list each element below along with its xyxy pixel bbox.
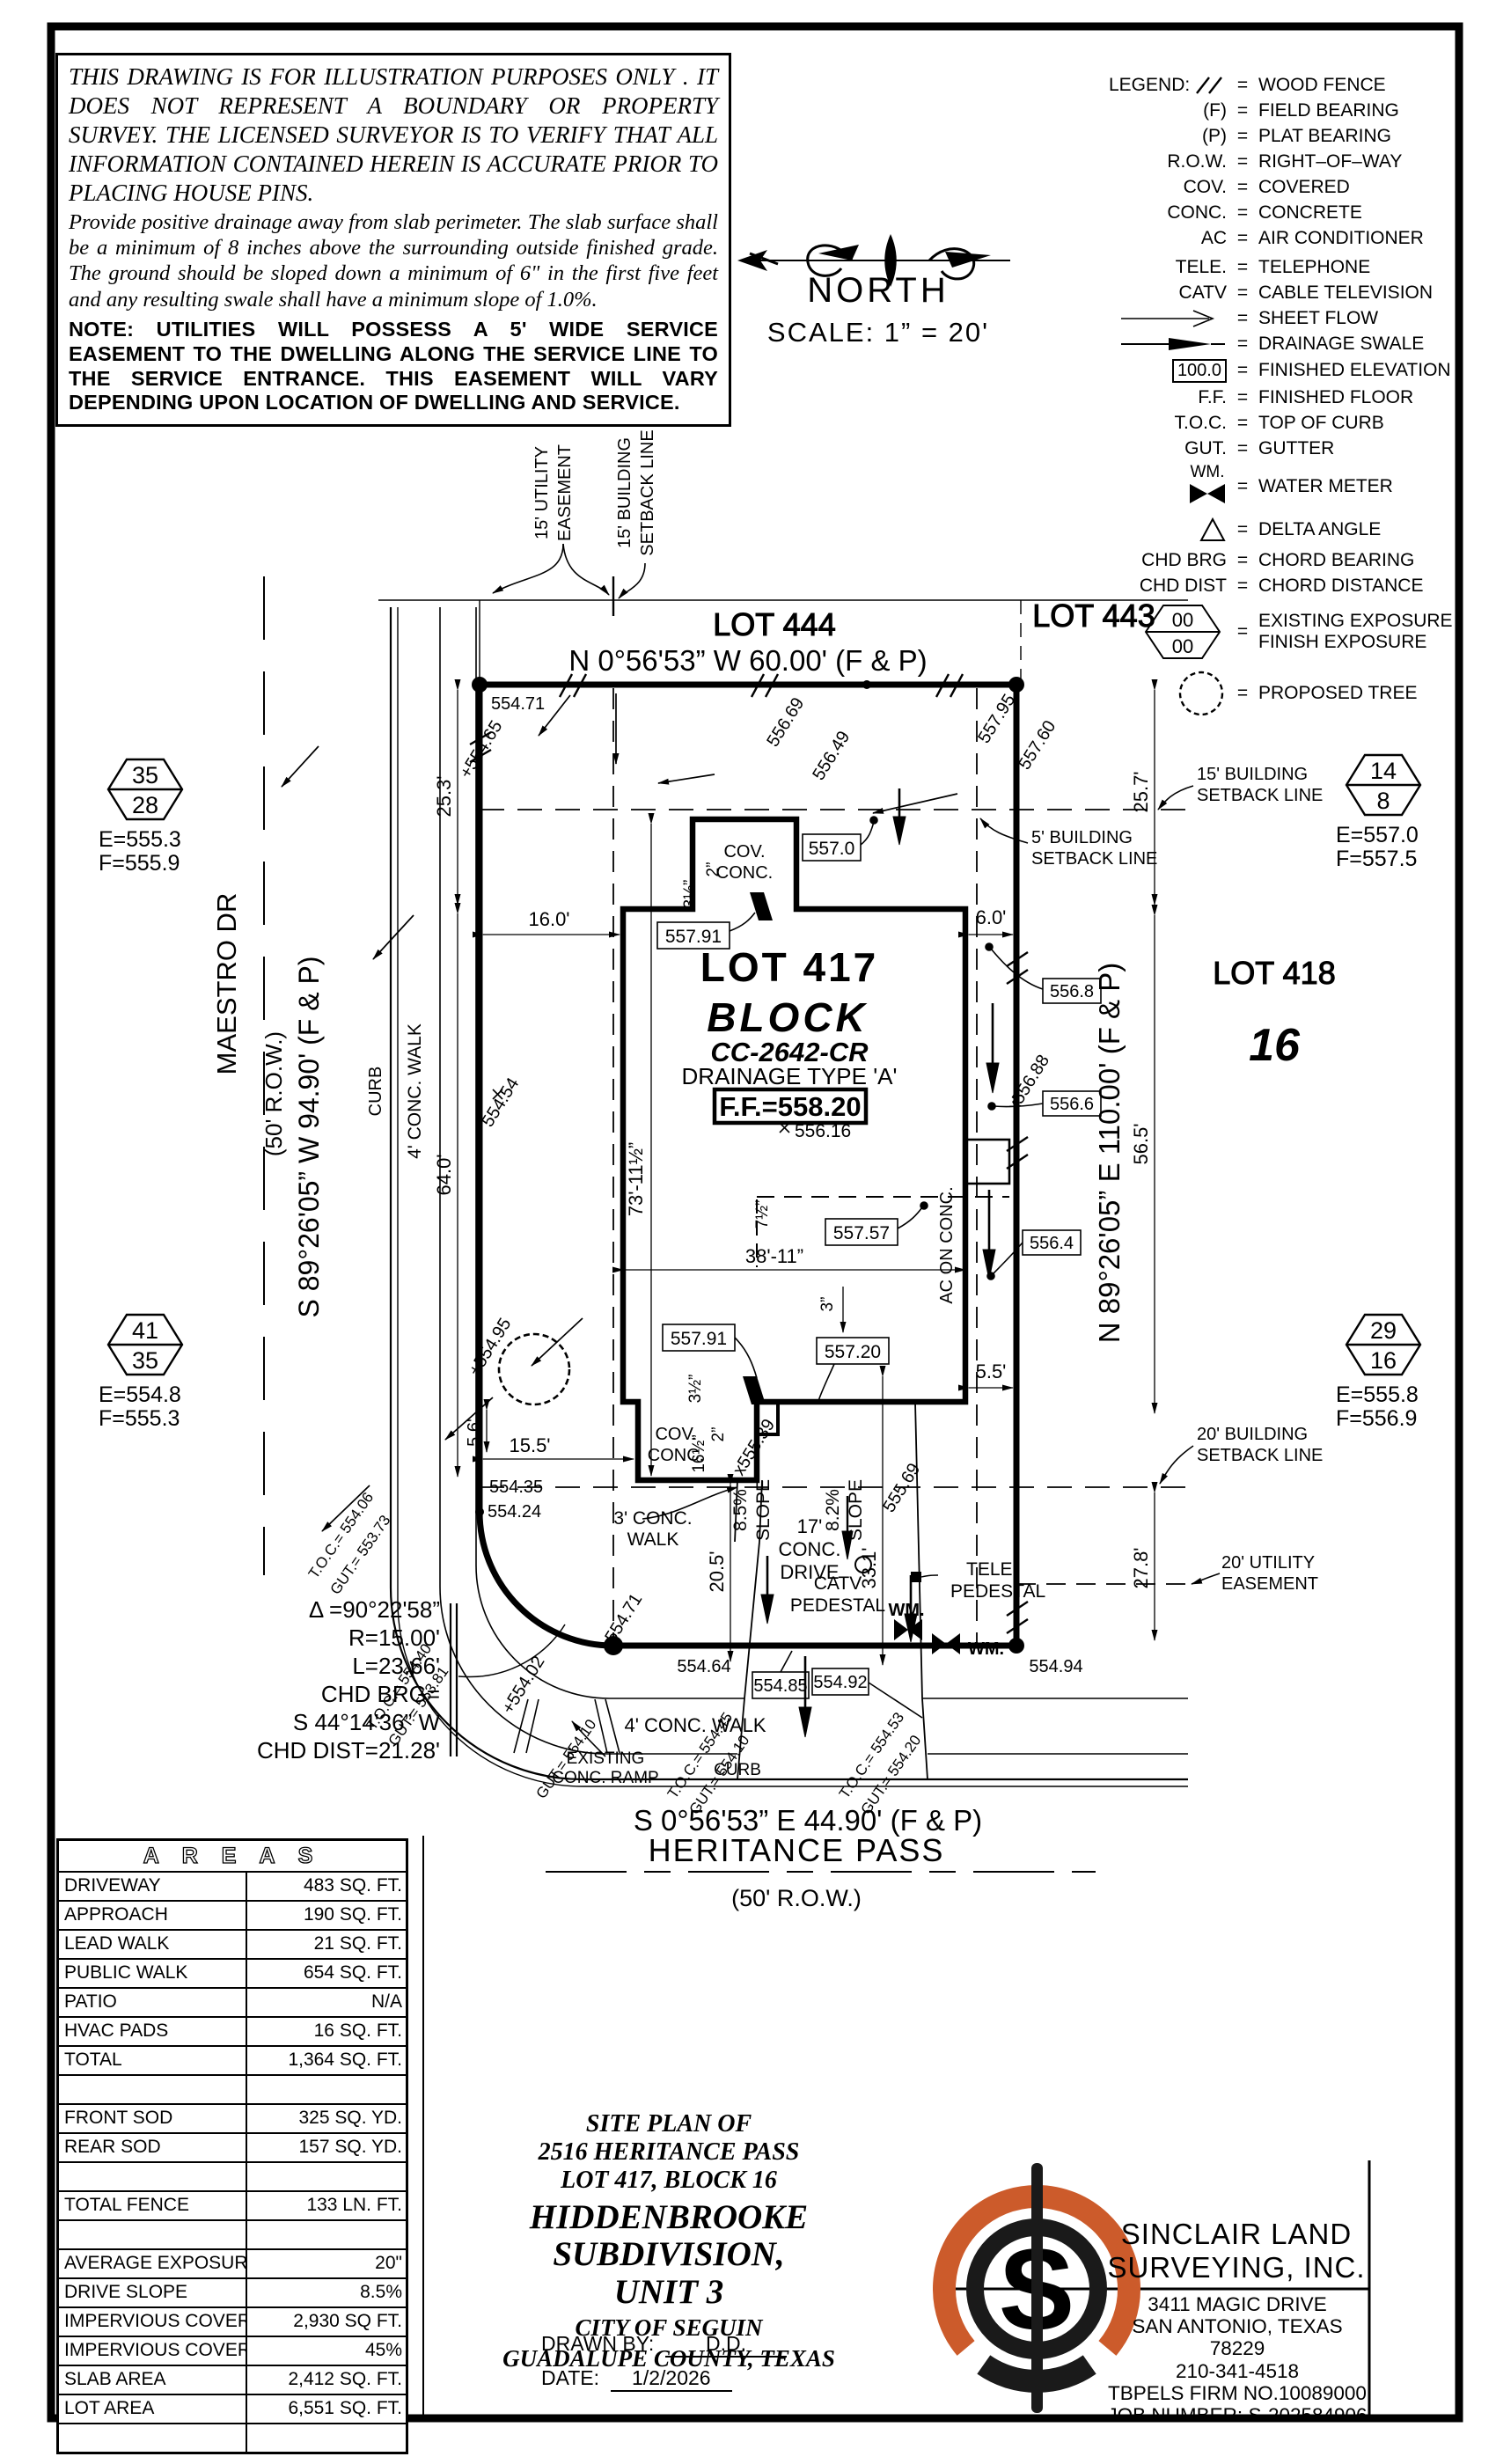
dim-64-0: 64.0' (433, 1154, 455, 1195)
house-outline (623, 819, 965, 1480)
title-line-3: LOT 417, BLOCK 16 (414, 2167, 924, 2195)
ac-on-conc-label: AC ON CONC. (937, 1186, 957, 1303)
legend-desc: WOOD FENCE (1258, 75, 1386, 96)
spot-554-02: +554.02 (498, 1653, 548, 1717)
building-setback-20-l2: SETBACK LINE (1197, 1446, 1323, 1465)
dim-2in-top: 2” (704, 862, 722, 877)
hex-41-35-finish: F=555.3 (99, 1406, 180, 1431)
areas-table: A R E A S DRIVEWAY483 SQ. FT. APPROACH19… (56, 1838, 408, 2454)
legend-sym: 00 (1172, 609, 1193, 631)
building-setback-5-l1: 5' BUILDING (1031, 828, 1133, 847)
legend-desc-l2: FINISH EXPOSURE (1258, 632, 1426, 652)
legend-desc: FINISHED FLOOR (1258, 387, 1413, 408)
legend-sym: R.O.W. (1111, 151, 1227, 172)
lot-444-label: LOT 444 (713, 606, 835, 642)
building-setback-15-right-l2: SETBACK LINE (1197, 786, 1323, 805)
dim-25-3: 25.3' (433, 775, 455, 817)
drive-label-l1: 17' (797, 1515, 823, 1537)
curve-delta: Δ =90°22'58” (309, 1596, 440, 1623)
utility-easement-15-l2: EASEMENT (555, 444, 575, 541)
legend-eq: = (1227, 151, 1258, 172)
dim-35in-bottom: 3½” (686, 1375, 705, 1404)
legend-row: =SHEET FLOW (1111, 305, 1467, 331)
legend-desc: CONCRETE (1258, 202, 1362, 224)
building-setback-15-top-l2: SETBACK LINE (638, 429, 657, 555)
legend-eq: = (1227, 75, 1258, 96)
spot-554-71-sw: 554.71 (601, 1590, 646, 1646)
disclaimer-para2: Provide positive drainage away from slab… (69, 209, 718, 313)
row-label: TOTAL (59, 2047, 246, 2074)
bearing-north: N 0°56'53” W 60.00' (F & P) (568, 644, 927, 677)
legend-desc: DRAINAGE SWALE (1258, 334, 1424, 355)
date-value: 1/2/2026 (611, 2366, 732, 2392)
elev-554-92: 554.92 (813, 1673, 867, 1692)
legend-sym: CHD BRG (1111, 550, 1227, 571)
wm-label-1: WM. (888, 1601, 924, 1620)
proposed-tree (499, 1334, 569, 1404)
table-row (59, 2163, 406, 2192)
row-value: N/A (246, 1989, 406, 2016)
legend-row: 100.0 =FINISHED ELEVATION (1111, 356, 1467, 385)
maestro-row: (50' R.O.W.) (260, 1031, 287, 1156)
block-word: BLOCK (707, 994, 869, 1040)
spot-554-24: 554.24 (488, 1502, 541, 1522)
ff-elevation: F.F.=558.20 (719, 1091, 861, 1122)
areas-table-title: A R E A S (59, 1841, 406, 1873)
legend: LEGEND: = WOOD FENCE (F)=FIELD BEARING (… (1111, 72, 1467, 722)
company-firm: TBPELS FIRM NO.10089000 (1107, 2382, 1368, 2404)
dim-25-7: 25.7' (1130, 771, 1152, 812)
row-value (246, 2221, 406, 2248)
dim-3in: 3” (818, 1297, 837, 1312)
hex-35-28-finish: F=555.9 (99, 851, 180, 876)
hex-29-16-finish: F=556.9 (1336, 1406, 1417, 1431)
slope-85: 8.5% (730, 1489, 751, 1531)
row-value: 21 SQ. FT. (246, 1931, 406, 1958)
row-label: LEAD WALK (59, 1931, 246, 1958)
table-row (59, 2424, 406, 2452)
legend-desc: CABLE TELEVISION (1258, 282, 1433, 304)
hex-41-35-bottom: 35 (132, 1347, 158, 1374)
row-label: AVERAGE EXPOSURE (59, 2250, 246, 2277)
row-label: DRIVEWAY (59, 1873, 246, 1900)
row-label (59, 2424, 246, 2452)
legend-eq: = (1227, 228, 1258, 249)
legend-desc: DELTA ANGLE (1258, 519, 1381, 540)
table-row: DRIVE SLOPE8.5% (59, 2279, 406, 2308)
catv-pedestal-l2: PEDESTAL (790, 1595, 885, 1616)
legend-eq: = (1227, 308, 1258, 329)
dim-6-0: 6.0' (976, 906, 1007, 928)
legend-sym: CONC. (1111, 202, 1227, 224)
block-16-label: 16 (1249, 1020, 1301, 1071)
finished-elevation-icon: 100.0 (1111, 359, 1227, 383)
legend-desc: GUTTER (1258, 438, 1334, 459)
company-address: 3411 MAGIC DRIVE SAN ANTONIO, TEXAS 7822… (1107, 2293, 1368, 2426)
elev-557-91-top: 557.91 (665, 927, 722, 947)
dim-5-5: 5.5' (976, 1360, 1007, 1382)
survey-sheet: LOT 444 LOT 443 LOT 418 16 N 0°56'53” W … (0, 0, 1496, 2464)
table-row: TOTAL FENCE133 LN. FT. (59, 2192, 406, 2221)
legend-sym: (P) (1111, 126, 1227, 147)
legend-sym: TELE. (1111, 257, 1227, 278)
proposed-tree-icon (1111, 668, 1227, 719)
scale-label: SCALE: 1” = 20' (711, 317, 1045, 348)
drawn-by-value: D.D. (665, 2332, 787, 2358)
elev-557-91-low: 557.91 (671, 1329, 727, 1349)
legend-row: TELE.=TELEPHONE (1111, 254, 1467, 280)
row-value: 6,551 SQ. FT. (246, 2395, 406, 2423)
dim-20-5: 20.5' (706, 1551, 728, 1592)
dim-165in: 16½” (690, 1434, 708, 1472)
street-name-maestro: MAESTRO DR (211, 893, 242, 1075)
cov-conc-top-2: CONC. (716, 863, 773, 883)
row-value: 2,412 SQ. FT. (246, 2366, 406, 2394)
row-label: APPROACH (59, 1902, 246, 1929)
legend-eq: = (1227, 519, 1258, 540)
legend-eq: = (1227, 576, 1258, 597)
drainage-swale-icon (1111, 334, 1227, 354)
legend-row: (P)=PLAT BEARING (1111, 123, 1467, 149)
dim-15-5: 15.5' (509, 1434, 550, 1456)
table-row: DRIVEWAY483 SQ. FT. (59, 1873, 406, 1902)
legend-row: CHD DIST=CHORD DISTANCE (1111, 573, 1467, 598)
row-label: REAR SOD (59, 2134, 246, 2161)
row-label: IMPERVIOUS COVERAGE (59, 2308, 246, 2336)
building-setback-15-top-l1: 15' BUILDING (615, 437, 634, 548)
curb-label-left: CURB (366, 1067, 385, 1117)
exposure-hexagon-icon: 00 00 (1111, 600, 1227, 664)
elev-556-8: 556.8 (1050, 982, 1094, 1001)
title-line-5: UNIT 3 (414, 2274, 924, 2312)
hex-35-28-top: 35 (132, 762, 158, 788)
legend-sym: GUT. (1111, 438, 1227, 459)
drainage-type: DRAINAGE TYPE 'A' (682, 1063, 898, 1089)
legend-sym: F.F. (1111, 387, 1227, 408)
legend-row: (F)=FIELD BEARING (1111, 98, 1467, 123)
drawn-date-block: DRAWN BY: D.D. DATE: 1/2/2026 (541, 2332, 911, 2401)
spot-554-95: +554.95 (465, 1315, 515, 1379)
hex-35-28-existing: E=555.3 (99, 827, 181, 852)
table-row: IMPERVIOUS COVERAGE2,930 SQ FT. (59, 2308, 406, 2337)
disclaimer-box: THIS DRAWING IS FOR ILLUSTRATION PURPOSE… (55, 53, 731, 427)
drawn-by-label: DRAWN BY: (541, 2332, 654, 2355)
row-value (246, 2076, 406, 2103)
row-label: TOTAL FENCE (59, 2192, 246, 2219)
row-value: 16 SQ. FT. (246, 2018, 406, 2045)
table-row (59, 2221, 406, 2250)
legend-desc: RIGHT–OF–WAY (1258, 151, 1402, 172)
legend-eq: = (1227, 360, 1258, 381)
table-row: REAR SOD157 SQ. YD. (59, 2134, 406, 2163)
company-city: SAN ANTONIO, TEXAS 78229 (1107, 2315, 1368, 2359)
row-value: 190 SQ. FT. (246, 1902, 406, 1929)
legend-sym: T.O.C. (1111, 413, 1227, 434)
table-row: IMPERVIOUS COVERAGE %45% (59, 2337, 406, 2366)
legend-eq: = (1227, 387, 1258, 408)
legend-desc: TELEPHONE (1258, 257, 1370, 278)
dim-73-11: 73'-11½” (625, 1142, 647, 1217)
legend-eq: = (1227, 476, 1258, 497)
legend-desc: COVERED (1258, 177, 1350, 198)
dim-27-8: 27.8' (1130, 1547, 1152, 1588)
row-label: FRONT SOD (59, 2105, 246, 2132)
company-phone: 210-341-4518 (1107, 2360, 1368, 2382)
hex-41-35-existing: E=554.8 (99, 1382, 181, 1407)
dim-35in-top: 3½” (681, 880, 700, 909)
table-row: PUBLIC WALK654 SQ. FT. (59, 1960, 406, 1989)
legend-desc: SHEET FLOW (1258, 308, 1378, 329)
hex-29-16-top: 29 (1370, 1317, 1397, 1344)
legend-eq: = (1227, 413, 1258, 434)
legend-eq: = (1227, 282, 1258, 304)
walk4-label-bottom: 4' CONC. WALK (624, 1714, 766, 1736)
elev-556-4: 556.4 (1030, 1234, 1074, 1253)
legend-eq: = (1227, 177, 1258, 198)
table-row: FRONT SOD325 SQ. YD. (59, 2105, 406, 2134)
water-meter-icon (932, 1633, 960, 1654)
table-row: TOTAL1,364 SQ. FT. (59, 2047, 406, 2076)
legend-title: LEGEND: (1109, 75, 1190, 96)
sheet-flow-icon (1111, 309, 1227, 328)
legend-row: T.O.C.=TOP OF CURB (1111, 410, 1467, 436)
slope-82-word: SLOPE (846, 1479, 866, 1541)
table-row: AVERAGE EXPOSURE20" (59, 2250, 406, 2279)
legend-row: GUT.=GUTTER (1111, 436, 1467, 461)
building-setback-15-right-l1: 15' BUILDING (1197, 765, 1308, 784)
row-value (246, 2163, 406, 2190)
legend-eq: = (1227, 202, 1258, 224)
spot-554-71-nw: 554.71 (491, 694, 545, 714)
legend-eq: = (1227, 126, 1258, 147)
elev-557-20: 557.20 (825, 1342, 881, 1362)
legend-desc: TOP OF CURB (1258, 413, 1384, 434)
hex-29-16-bottom: 16 (1370, 1347, 1397, 1374)
row-value (246, 2424, 406, 2452)
dim-75in: 7½” (753, 1200, 772, 1229)
legend-row: CHD BRG=CHORD BEARING (1111, 547, 1467, 573)
legend-eq: = (1227, 550, 1258, 571)
hex-14-8-finish: F=557.5 (1336, 847, 1417, 871)
elev-556-6: 556.6 (1050, 1095, 1094, 1114)
disclaimer-note: NOTE: UTILITIES WILL POSSESS A 5' WIDE S… (69, 318, 718, 415)
walk3-label-l1: 3' CONC. (613, 1508, 692, 1529)
row-value: 2,930 SQ FT. (246, 2308, 406, 2336)
curve-radius: R=15.00' (348, 1624, 440, 1651)
utility-easement-20-l1: 20' UTILITY (1221, 1553, 1315, 1573)
table-row: APPROACH190 SQ. FT. (59, 1902, 406, 1931)
walk3-label-l2: WALK (627, 1529, 679, 1550)
drive-label-l2: CONC. (779, 1538, 841, 1560)
row-label: PUBLIC WALK (59, 1960, 246, 1987)
disclaimer-para1: THIS DRAWING IS FOR ILLUSTRATION PURPOSE… (69, 62, 718, 208)
row-label: IMPERVIOUS COVERAGE % (59, 2337, 246, 2365)
legend-sym: 100.0 (1172, 359, 1227, 383)
curve-chd-brg: S 44°14'36” W (293, 1709, 441, 1735)
legend-row: =PROPOSED TREE (1111, 665, 1467, 722)
building-setback-5-l2: SETBACK LINE (1031, 849, 1157, 869)
row-label (59, 2076, 246, 2103)
legend-eq: = (1227, 100, 1258, 121)
bearing-east: N 89°26'05” E 110.00' (F & P) (1093, 963, 1126, 1343)
curve-chd-brg-label: CHD BRG= (321, 1681, 440, 1707)
ramp-label-l2: CONC. RAMP (552, 1769, 658, 1787)
legend-eq: = (1227, 621, 1258, 642)
table-row: HVAC PADS16 SQ. FT. (59, 2018, 406, 2047)
legend-desc: AIR CONDITIONER (1258, 228, 1424, 249)
walk4-label-left: 4' CONC. WALK (405, 1023, 425, 1159)
legend-eq: = (1227, 257, 1258, 278)
tele-pedestal-l2: PEDESTAL (950, 1581, 1045, 1602)
row-value: 45% (246, 2337, 406, 2365)
row-value: 654 SQ. FT. (246, 1960, 406, 1987)
legend-eq: = (1227, 683, 1258, 704)
hex-41-35-top: 41 (132, 1317, 158, 1344)
company-name-l2: SURVEYING, INC. (1104, 2251, 1368, 2284)
elev-557-0: 557.0 (809, 839, 855, 859)
legend-desc: CHORD DISTANCE (1258, 576, 1423, 597)
dim-16-0: 16.0' (528, 908, 569, 930)
hex-14-8-bottom: 8 (1376, 788, 1390, 814)
company-street: 3411 MAGIC DRIVE (1107, 2293, 1368, 2315)
legend-row: COV.=COVERED (1111, 174, 1467, 200)
spot-554-64: 554.64 (677, 1657, 730, 1676)
water-meter-icon: WM. (1111, 463, 1227, 510)
spot-554-54: 554.54 (478, 1074, 523, 1131)
legend-desc: FIELD BEARING (1258, 100, 1399, 121)
legend-desc-l1: EXISTING EXPOSURE (1258, 611, 1453, 631)
spot-556-49: 556.49 (809, 728, 854, 784)
lot-417-title: LOT 417 (700, 944, 879, 990)
utility-easement-20-l2: EASEMENT (1221, 1574, 1318, 1594)
hex-35-28-bottom: 28 (132, 792, 158, 818)
legend-row: R.O.W.=RIGHT–OF–WAY (1111, 149, 1467, 174)
legend-sym: CATV (1111, 282, 1227, 304)
catv-pedestal-l1: CATV (814, 1573, 862, 1594)
row-value: 20" (246, 2250, 406, 2277)
row-value: 1,364 SQ. FT. (246, 2047, 406, 2074)
table-row: LEAD WALK21 SQ. FT. (59, 1931, 406, 1960)
dim-5-6: 5.6' (465, 1419, 484, 1447)
hex-14-8-top: 14 (1370, 758, 1397, 784)
tele-pedestal-l1: TELE. (966, 1559, 1017, 1580)
legend-row: CATV=CABLE TELEVISION (1111, 280, 1467, 305)
lot-418-label: LOT 418 (1213, 955, 1335, 991)
row-value: 483 SQ. FT. (246, 1873, 406, 1900)
legend-desc: CHORD BEARING (1258, 550, 1414, 571)
row-label: LOT AREA (59, 2395, 246, 2423)
row-label: DRIVE SLOPE (59, 2279, 246, 2306)
date-label: DATE: (541, 2366, 599, 2389)
curve-chd-dist: CHD DIST=21.28' (257, 1737, 440, 1764)
hex-29-16-existing: E=555.8 (1336, 1382, 1419, 1407)
legend-row: LEGEND: = WOOD FENCE (1111, 72, 1467, 98)
legend-row: =DELTA ANGLE (1111, 512, 1467, 547)
table-row: LOT AREA6,551 SQ. FT. (59, 2395, 406, 2424)
legend-row: =DRAINAGE SWALE (1111, 331, 1467, 356)
utility-easement-15-l1: 15' UTILITY (532, 446, 552, 539)
legend-eq: = (1227, 334, 1258, 355)
dim-33-1: 33.1' (858, 1547, 880, 1588)
spot-554-35: 554.35 (489, 1478, 543, 1497)
legend-desc: EXISTING EXPOSUREFINISH EXPOSURE (1258, 611, 1453, 653)
title-line-4: HIDDENBROOKE SUBDIVISION, (414, 2199, 924, 2275)
wm-label-2: WM. (968, 1639, 1004, 1659)
ff-spot: 556.16 (795, 1121, 851, 1141)
legend-eq: = (1227, 438, 1258, 459)
ac-pad (965, 1140, 1009, 1184)
legend-sym: WM. (1188, 463, 1227, 482)
legend-sym: AC (1111, 228, 1227, 249)
legend-desc: PLAT BEARING (1258, 126, 1391, 147)
spot-557-60: 557.60 (1015, 717, 1060, 774)
row-value: 133 LN. FT. (246, 2192, 406, 2219)
row-label (59, 2163, 246, 2190)
legend-row: F.F.=FINISHED FLOOR (1111, 385, 1467, 410)
row-value: 8.5% (246, 2279, 406, 2306)
legend-sym: (F) (1111, 100, 1227, 121)
legend-row: AC=AIR CONDITIONER (1111, 225, 1467, 251)
legend-sym: CHD DIST (1111, 576, 1227, 597)
slope-85-word: SLOPE (753, 1479, 774, 1541)
company-name: SINCLAIR LAND SURVEYING, INC. (1104, 2218, 1368, 2284)
spot-554-94: 554.94 (1029, 1657, 1082, 1676)
legend-row: 00 00 = EXISTING EXPOSUREFINISH EXPOSURE (1111, 598, 1467, 665)
table-row: PATION/A (59, 1989, 406, 2018)
title-line-1: SITE PLAN OF (414, 2110, 924, 2138)
dim-2in-bottom: 2” (709, 1427, 728, 1442)
table-row (59, 2076, 406, 2105)
company-name-l1: SINCLAIR LAND (1104, 2218, 1368, 2251)
logo-crosshair-bar (1031, 2163, 1043, 2413)
heritance-row: (50' R.O.W.) (731, 1885, 862, 1911)
legend-desc: PROPOSED TREE (1258, 683, 1418, 704)
row-label (59, 2221, 246, 2248)
row-value: 157 SQ. YD. (246, 2134, 406, 2161)
spot-556-69: 556.69 (763, 694, 808, 751)
dim-56-5: 56.5' (1130, 1123, 1152, 1164)
dim-38-11: 38'-11” (745, 1245, 803, 1267)
elev-554-85: 554.85 (753, 1676, 807, 1696)
row-label: PATIO (59, 1989, 246, 2016)
legend-desc: FINISHED ELEVATION (1258, 360, 1451, 381)
company-job: JOB NUMBER: S-202584906 (1107, 2404, 1368, 2426)
slope-82: 8.2% (823, 1489, 843, 1531)
title-line-2: 2516 HERITANCE PASS (414, 2138, 924, 2167)
spot-557-95: 557.95 (974, 691, 1019, 747)
elev-557-57: 557.57 (833, 1223, 890, 1243)
legend-row: WM. =WATER METER (1111, 461, 1467, 512)
legend-row: CONC.=CONCRETE (1111, 200, 1467, 225)
curve-length: L=23.66' (352, 1653, 440, 1679)
street-name-heritance: HERITANCE PASS (649, 1832, 945, 1868)
bearing-west: S 89°26'05” W 94.90' (F & P) (293, 957, 325, 1318)
building-setback-20-l1: 20' BUILDING (1197, 1425, 1308, 1444)
legend-sym2: 00 (1172, 635, 1193, 657)
hex-14-8-existing: E=557.0 (1336, 823, 1419, 847)
legend-sym: COV. (1111, 177, 1227, 198)
row-value: 325 SQ. YD. (246, 2105, 406, 2132)
row-label: HVAC PADS (59, 2018, 246, 2045)
cov-conc-top-1: COV. (723, 842, 765, 862)
row-label: SLAB AREA (59, 2366, 246, 2394)
legend-desc: WATER METER (1258, 476, 1393, 497)
table-row: SLAB AREA2,412 SQ. FT. (59, 2366, 406, 2395)
delta-angle-icon (1111, 517, 1227, 543)
north-label: NORTH (746, 271, 1010, 311)
